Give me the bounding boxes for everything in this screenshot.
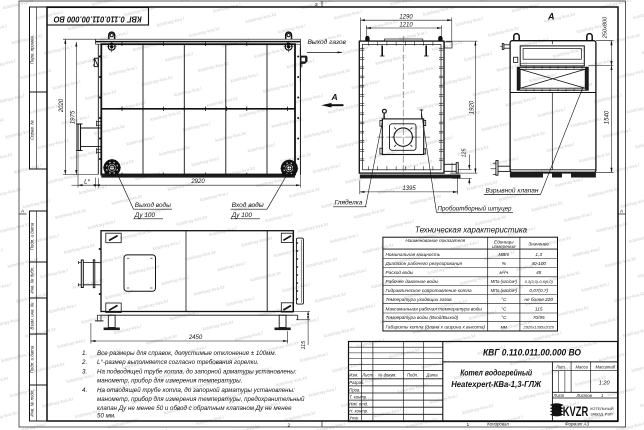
svg-text:Инв. № подл.: Инв. № подл. [30,389,35,416]
svg-text:ЗАВОД. РЭП: ЗАВОД. РЭП [590,412,612,416]
svg-text:Ду 100: Ду 100 [231,212,253,219]
svg-text:1:20: 1:20 [599,381,611,387]
svg-text:1210: 1210 [399,23,413,29]
svg-text:1,3: 1,3 [535,252,542,257]
svg-text:L°-размер выполняется согласно: L°-размер выполняется согласно требовани… [97,359,259,366]
svg-text:А: А [547,12,555,22]
svg-text:Листов: Листов [576,393,593,398]
svg-text:1540: 1540 [604,110,610,124]
svg-text:Габариты котла (длина х ширина: Габариты котла (длина х ширина х высота) [386,324,486,329]
svg-text:Масса: Масса [576,365,589,370]
svg-text:Подп. и дата: Подп. и дата [30,345,35,373]
svg-text:Разраб.: Разраб. [349,380,364,385]
svg-text:Масштаб: Масштаб [596,365,616,370]
svg-text:мм: мм [501,324,508,329]
svg-text:°С: °С [501,306,507,311]
svg-text:Н. контр.: Н. контр. [349,409,368,414]
svg-text:250х800: 250х800 [603,16,609,39]
svg-text:А: А [331,92,338,102]
svg-text:Расход воды: Расход воды [386,270,414,275]
svg-text:1395: 1395 [402,186,416,192]
svg-text:Гидравлическое сопротивление к: Гидравлическое сопротивление котла [386,288,473,293]
svg-text:1: 1 [601,393,603,398]
svg-text:Техническая характеристика: Техническая характеристика [415,226,528,235]
svg-text:Котел водогрейный: Котел водогрейный [460,367,533,377]
svg-text:На отводящей трубе котла, до з: На отводящей трубе котла, до запорной ар… [97,387,295,394]
svg-text:КВГ 0.110.011.00.000 ВО: КВГ 0.110.011.00.000 ВО [54,14,142,23]
svg-text:1: 1 [467,422,470,428]
svg-text:КОТЕЛЬНЫЙ: КОТЕЛЬНЫЙ [590,407,613,411]
svg-text:40-100: 40-100 [531,261,546,266]
svg-text:4.: 4. [82,387,87,394]
svg-text:Все размеры для справок, допус: Все размеры для справок, допустимые откл… [97,350,276,357]
svg-text:2920х1395х2020: 2920х1395х2020 [522,324,554,329]
svg-text:1.: 1. [82,350,87,357]
svg-text:манометр, прибор для измерения: манометр, прибор для измерения температу… [97,378,242,385]
svg-text:2450: 2450 [188,335,203,341]
svg-text:МПа (кгс/см²): МПа (кгс/см²) [491,279,518,284]
svg-text:115: 115 [535,306,543,311]
svg-text:Пробоотборный штуцер: Пробоотборный штуцер [438,204,512,212]
svg-text:Взам. инв. №: Взам. инв. № [30,302,35,329]
svg-text:115: 115 [301,340,307,350]
svg-text:измерения: измерения [492,244,516,249]
svg-text:Т. контр.: Т. контр. [349,394,367,399]
svg-text:Выход газов: Выход газов [308,38,347,46]
svg-text:Heatexpert-КВа-1,3-ГЛЖ: Heatexpert-КВа-1,3-ГЛЖ [451,379,542,389]
svg-text:Температура воды (Вход/Выход): Температура воды (Вход/Выход) [386,315,459,320]
svg-text:3.: 3. [82,368,87,375]
svg-text:L*: L* [84,180,90,186]
svg-text:2.: 2. [81,359,87,366]
svg-text:МВт: МВт [498,252,509,257]
svg-text:На подводящей трубе котла, до: На подводящей трубе котла, до запорной а… [97,368,297,375]
svg-text:Значение: Значение [528,242,549,247]
svg-text:манометр, прибор для измерения: манометр, прибор для измерения температу… [97,396,305,403]
svg-text:Подп. и дата: Подп. и дата [30,222,35,250]
svg-text:45: 45 [536,270,542,275]
svg-text:Копировал: Копировал [487,422,509,427]
svg-text:Формат А3: Формат А3 [565,422,590,427]
svg-text:2920: 2920 [190,179,205,185]
svg-text:50 мм.: 50 мм. [97,412,116,419]
svg-text:Взрывной клапан: Взрывной клапан [486,187,539,195]
svg-text:м³/ч: м³/ч [500,270,509,275]
svg-text:°С: °С [501,297,507,302]
svg-text:не более 220: не более 220 [524,297,553,302]
svg-text:Номинальная мощность: Номинальная мощность [386,252,441,257]
svg-text:Перв. примен.: Перв. примен. [29,35,34,64]
svg-text:%: % [502,261,506,266]
svg-text:Температура уходящих газов: Температура уходящих газов [386,297,453,302]
svg-text:2: 2 [315,2,318,8]
svg-text:Лит.: Лит. [555,365,566,370]
svg-text:Ду 100: Ду 100 [134,212,156,219]
svg-text:°С: °С [501,315,507,320]
svg-text:Справ. №: Справ. № [29,120,34,140]
svg-text:1920: 1920 [469,100,475,114]
svg-text:70/95: 70/95 [533,315,545,320]
svg-text:Лист: Лист [553,393,565,398]
svg-text:КВГ 0.110.011.00.000 ВО: КВГ 0.110.011.00.000 ВО [483,346,582,357]
svg-text:1290: 1290 [399,14,413,20]
svg-text:Наименование показателя: Наименование показателя [405,238,465,243]
svg-text:Изм.: Изм. [349,373,358,378]
svg-text:Гляделка: Гляделка [335,199,363,207]
svg-text:Вход воды: Вход воды [232,201,264,209]
svg-text:клапан Ду не менее 50 и обвод: клапан Ду не менее 50 и обвод с обратным… [97,405,292,412]
svg-text:Рабочее давление воды: Рабочее давление воды [386,279,439,284]
svg-text:125: 125 [462,148,468,158]
svg-text:Подп.: Подп. [407,373,418,378]
svg-text:KVZR: KVZR [563,404,589,419]
svg-text:Максимальная рабочая температу: Максимальная рабочая температура воды [386,306,483,311]
svg-text:№ докум.: № докум. [378,373,396,378]
svg-text:МПа (кгс/см²): МПа (кгс/см²) [491,288,518,293]
svg-text:2: 2 [288,423,291,429]
svg-text:Утв.: Утв. [349,416,359,421]
svg-text:Лист: Лист [361,373,373,378]
svg-text:Диапазон рабочего регулировани: Диапазон рабочего регулирования [385,261,463,266]
svg-text:Выход воды: Выход воды [135,201,171,209]
svg-text:1975: 1975 [70,110,76,124]
svg-text:Инв. № дубл.: Инв. № дубл. [30,266,35,293]
svg-text:2020: 2020 [59,98,65,113]
svg-text:Дата: Дата [426,373,439,378]
svg-text:Пров.: Пров. [349,387,360,392]
svg-text:0,07(0,7): 0,07(0,7) [529,288,548,293]
svg-text:Нач. отд.: Нач. отд. [349,402,368,407]
svg-text:0,3(3,0)-0,6(6,0): 0,3(3,0)-0,6(6,0) [525,279,554,284]
